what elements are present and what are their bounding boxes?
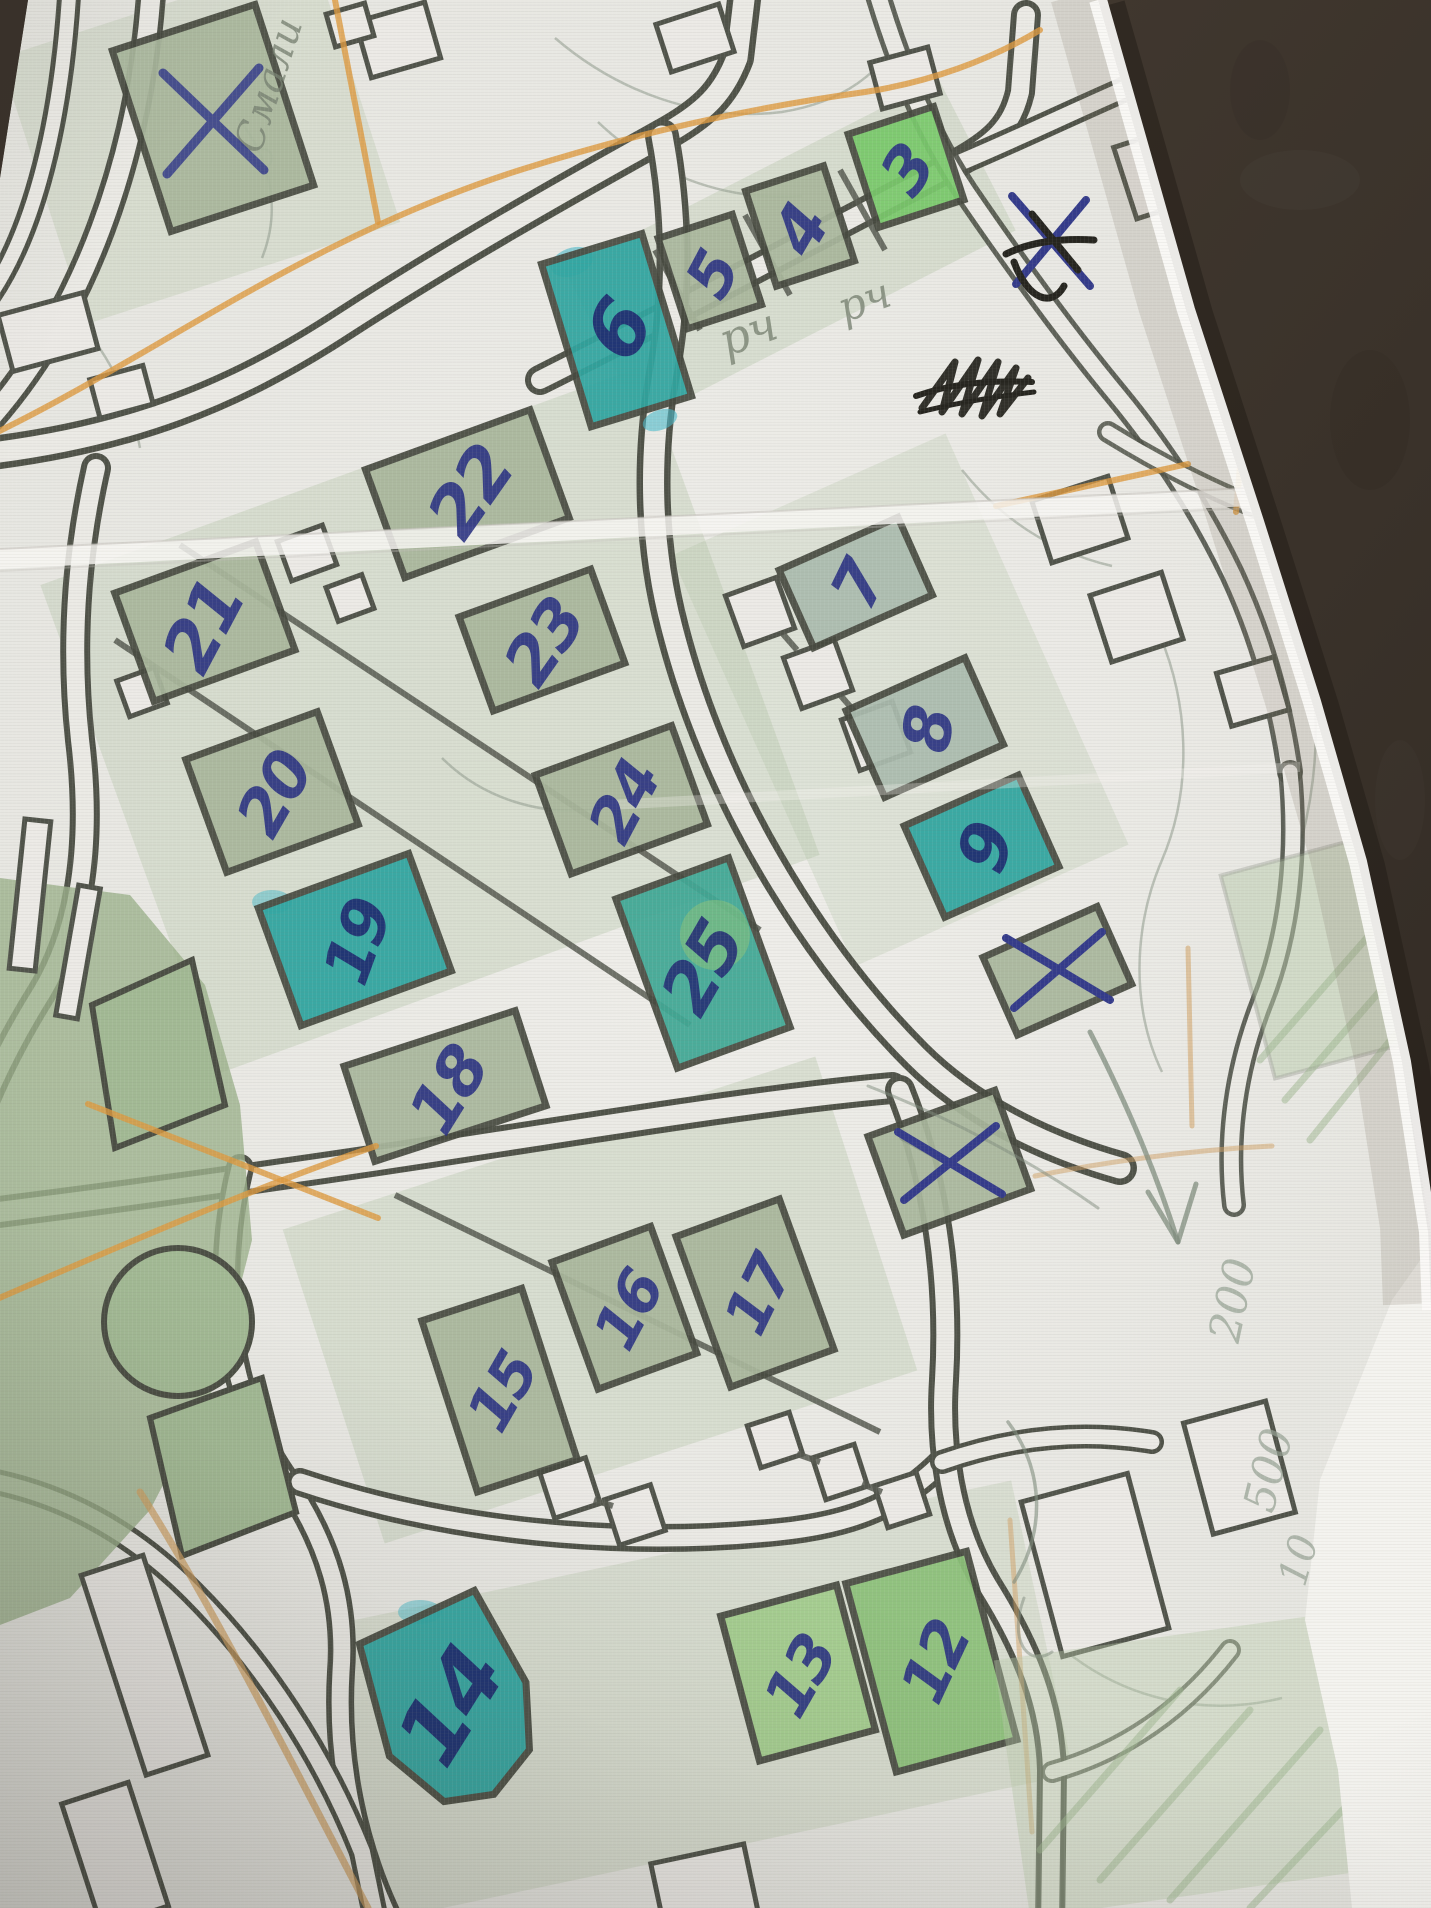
park-circle (104, 1248, 252, 1396)
annotated-street-map: Смалирчрч20050010 3456789121314151617181… (0, 0, 1431, 1908)
map-photo: Смалирчрч20050010 3456789121314151617181… (0, 0, 1431, 1908)
